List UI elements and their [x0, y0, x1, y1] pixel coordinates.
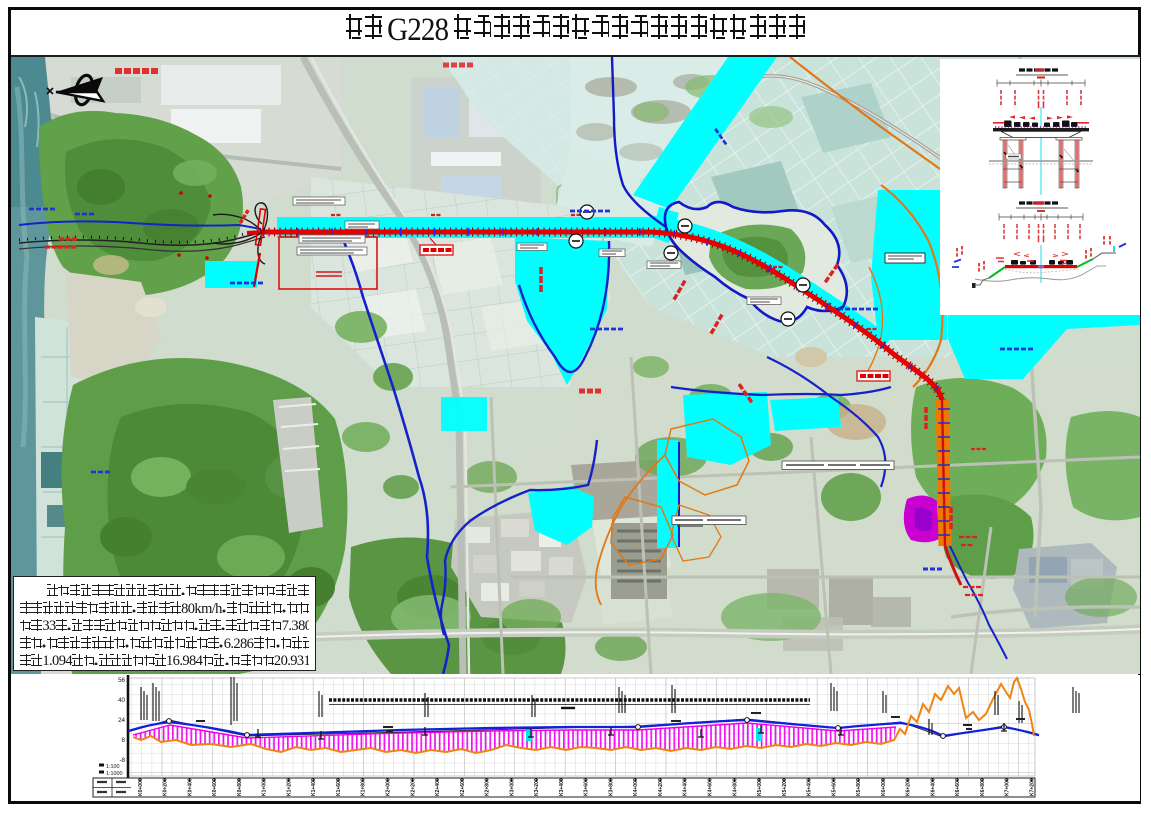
svg-text:K0+200: K0+200: [163, 778, 169, 796]
svg-text:K4+600: K4+600: [708, 778, 714, 796]
svg-text:K5+400: K5+400: [807, 778, 813, 796]
svg-text:K4+200: K4+200: [658, 778, 664, 796]
svg-text:K6+400: K6+400: [930, 778, 936, 796]
svg-text:56: 56: [118, 677, 125, 684]
svg-text:40: 40: [118, 697, 125, 704]
svg-text:1:1000: 1:1000: [106, 771, 123, 777]
svg-text:-8: -8: [119, 757, 125, 764]
svg-text:K7+200: K7+200: [1030, 778, 1036, 796]
svg-text:K5+600: K5+600: [831, 778, 837, 796]
svg-text:K2+400: K2+400: [435, 778, 441, 796]
svg-text:K3+200: K3+200: [534, 778, 540, 796]
svg-text:K3+600: K3+600: [584, 778, 590, 796]
svg-text:K6+800: K6+800: [980, 778, 986, 796]
svg-text:K3+800: K3+800: [608, 778, 614, 796]
svg-text:K5+800: K5+800: [856, 778, 862, 796]
svg-text:K3+400: K3+400: [559, 778, 565, 796]
svg-text:K1+600: K1+600: [336, 778, 342, 796]
svg-text:24: 24: [118, 717, 125, 724]
svg-text:K0+800: K0+800: [237, 778, 243, 796]
svg-text:K4+000: K4+000: [633, 778, 639, 796]
svg-text:K5+200: K5+200: [782, 778, 788, 796]
svg-text:K1+200: K1+200: [286, 778, 292, 796]
svg-text:K2+000: K2+000: [386, 778, 392, 796]
svg-text:K4+400: K4+400: [683, 778, 689, 796]
svg-text:K6+200: K6+200: [906, 778, 912, 796]
svg-text:K6+000: K6+000: [881, 778, 887, 796]
svg-text:K4+800: K4+800: [732, 778, 738, 796]
svg-text:K0+000: K0+000: [138, 778, 144, 796]
svg-text:K1+400: K1+400: [311, 778, 317, 796]
svg-text:K0+600: K0+600: [212, 778, 218, 796]
svg-text:K2+600: K2+600: [460, 778, 466, 796]
svg-text:K7+000: K7+000: [1005, 778, 1011, 796]
svg-text:1:100: 1:100: [106, 764, 120, 770]
svg-text:K0+400: K0+400: [187, 778, 193, 796]
svg-text:K5+000: K5+000: [757, 778, 763, 796]
svg-text:K6+600: K6+600: [955, 778, 961, 796]
svg-text:K2+800: K2+800: [485, 778, 491, 796]
svg-text:K1+000: K1+000: [262, 778, 268, 796]
svg-text:8: 8: [122, 737, 126, 744]
svg-text:K2+200: K2+200: [410, 778, 416, 796]
svg-text:K3+000: K3+000: [509, 778, 515, 796]
svg-text:K1+800: K1+800: [361, 778, 367, 796]
